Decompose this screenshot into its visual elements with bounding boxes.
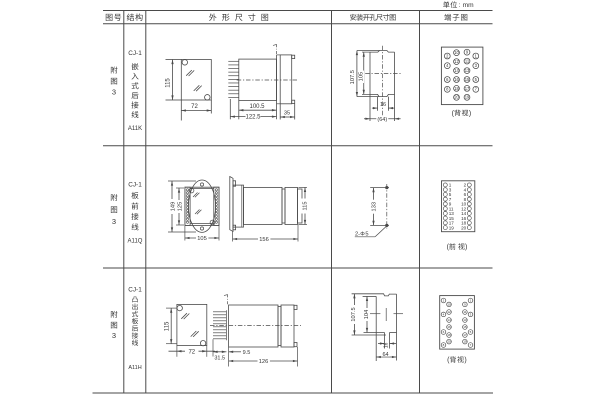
svg-text:72: 72 — [191, 104, 198, 110]
svg-text:105: 105 — [197, 236, 207, 242]
svg-text:CJ-1: CJ-1 — [128, 287, 142, 294]
svg-text:20: 20 — [461, 225, 467, 230]
svg-text:15: 15 — [463, 325, 467, 329]
svg-text:149: 149 — [170, 202, 176, 212]
svg-text:10: 10 — [454, 50, 459, 55]
svg-text:3: 3 — [112, 88, 116, 97]
svg-text:16: 16 — [380, 102, 386, 108]
svg-text:18: 18 — [447, 333, 451, 337]
svg-text:): ) — [465, 244, 467, 251]
svg-text:18: 18 — [454, 86, 459, 91]
svg-text:107.5: 107.5 — [350, 70, 356, 84]
svg-text:3: 3 — [112, 217, 116, 226]
svg-text:105: 105 — [359, 72, 365, 82]
svg-text:A11Q: A11Q — [128, 239, 143, 245]
svg-text:17: 17 — [463, 333, 467, 337]
svg-text:16: 16 — [447, 325, 451, 329]
svg-text:19: 19 — [463, 340, 467, 344]
svg-text:100.5: 100.5 — [249, 104, 265, 110]
svg-text:17: 17 — [465, 86, 470, 91]
svg-text:19: 19 — [449, 225, 455, 230]
svg-text:104: 104 — [364, 310, 370, 320]
svg-text:12: 12 — [454, 59, 459, 64]
svg-text:13: 13 — [463, 318, 467, 322]
svg-text:20: 20 — [454, 95, 459, 100]
svg-text:31.5: 31.5 — [214, 355, 225, 361]
svg-text:15: 15 — [465, 77, 470, 82]
svg-text:122.5: 122.5 — [245, 114, 261, 120]
svg-text::: : — [459, 2, 461, 9]
svg-text:): ) — [469, 110, 471, 117]
svg-text:16: 16 — [383, 342, 389, 348]
svg-text:19: 19 — [465, 95, 470, 100]
svg-text:125: 125 — [177, 202, 183, 212]
svg-text:A11H: A11H — [128, 365, 141, 371]
svg-text:mm: mm — [463, 2, 474, 9]
svg-text:14: 14 — [447, 318, 451, 322]
svg-text:CJ-1: CJ-1 — [128, 50, 142, 57]
svg-text:64: 64 — [382, 352, 388, 358]
svg-text:11: 11 — [463, 310, 466, 314]
svg-text:115: 115 — [164, 321, 170, 331]
svg-text:11: 11 — [465, 59, 470, 64]
svg-text:16: 16 — [454, 77, 459, 82]
svg-text:9.5: 9.5 — [243, 350, 251, 356]
svg-text:126: 126 — [259, 359, 269, 365]
svg-text:14: 14 — [454, 68, 459, 73]
svg-text:156: 156 — [259, 237, 269, 243]
svg-text:13: 13 — [465, 68, 470, 73]
svg-text:115: 115 — [166, 78, 172, 88]
svg-text:(64): (64) — [377, 117, 387, 123]
svg-text:5: 5 — [365, 231, 368, 237]
svg-text:CJ-1: CJ-1 — [128, 182, 142, 189]
svg-text:35: 35 — [284, 110, 290, 116]
svg-text:107.5: 107.5 — [351, 307, 357, 321]
svg-text:133: 133 — [372, 202, 378, 212]
svg-text:72: 72 — [188, 349, 195, 355]
svg-text:): ) — [464, 357, 466, 364]
svg-text:115: 115 — [303, 201, 309, 210]
svg-text:12: 12 — [447, 310, 451, 314]
svg-text:A11K: A11K — [128, 126, 142, 132]
svg-text:20: 20 — [447, 340, 451, 344]
svg-text:10: 10 — [447, 303, 451, 307]
svg-text:3: 3 — [112, 331, 116, 340]
